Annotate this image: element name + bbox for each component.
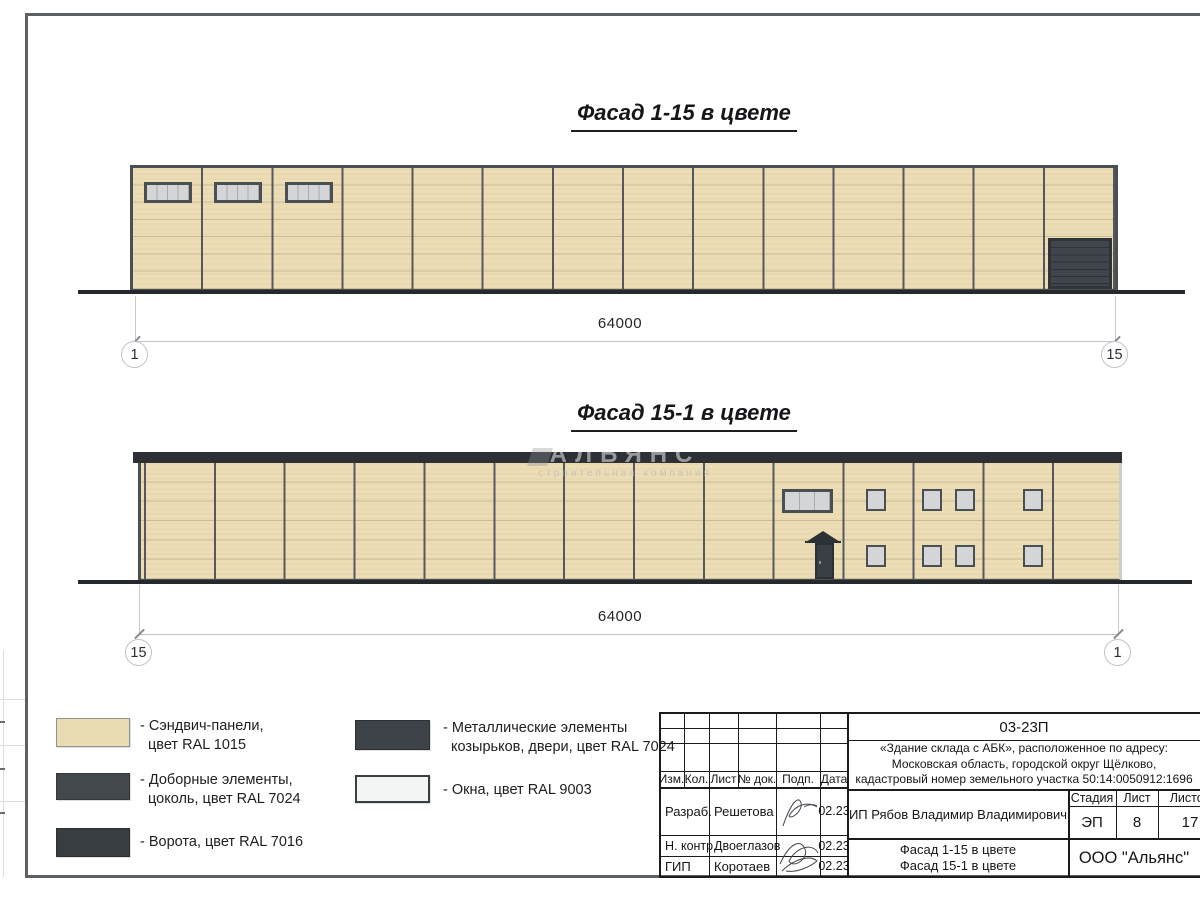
col-header-ndok: № док.: [738, 771, 776, 787]
axis-label: 15: [130, 645, 146, 661]
dimension-line: [135, 341, 1115, 342]
ground-line: [78, 290, 1185, 294]
col-header-izm: Изм.: [659, 771, 684, 787]
title-block: Изм. Кол. Лист № док. Подп. Дата Разраб.…: [659, 712, 1200, 878]
axis-label: 1: [130, 347, 138, 363]
legend-text: - Ворота, цвет RAL 7016: [140, 833, 303, 852]
square-window: [922, 489, 942, 511]
strip-window: [144, 182, 192, 203]
legend-label-gates: - Ворота, цвет RAL 7016: [140, 833, 303, 852]
margin-line: [0, 801, 25, 802]
legend-swatch-trim-elements: [56, 773, 130, 800]
door-handle: [819, 561, 821, 564]
sheet-frame-left: [25, 13, 28, 878]
sheet-frame-top: [25, 13, 1200, 16]
square-window: [1023, 489, 1043, 511]
legend-text: козырьков, двери, цвет RAL 7024: [443, 738, 675, 757]
row-role-nkontr: Н. контр.: [661, 835, 709, 856]
legend-swatch-gates: [56, 828, 130, 857]
facade-15-1-elevation: [138, 463, 1122, 581]
stage-value: ЭП: [1068, 806, 1116, 838]
row-name-korotaev: Коротаев: [710, 856, 776, 876]
margin-line: [0, 745, 25, 746]
legend-label-metal-elements: - Металлические элементы козырьков, двер…: [443, 719, 675, 756]
margin-tick: [0, 721, 5, 723]
legend-swatch-metal-elements: [355, 720, 430, 750]
legend-text: - Доборные элементы,: [140, 771, 301, 790]
strip-window: [285, 182, 333, 203]
extension-line: [1118, 585, 1119, 635]
col-header-data: Дата: [820, 771, 848, 787]
axis-marker-15: 15: [125, 639, 152, 666]
axis-label: 1: [1113, 645, 1121, 661]
row-role-gip: ГИП: [661, 856, 709, 876]
sheets-total: 17: [1158, 806, 1200, 838]
square-window: [866, 545, 886, 567]
col-header-podp: Подп.: [776, 771, 820, 787]
project-description: «Здание склада с АБК», расположенное по …: [848, 740, 1200, 789]
drawing-title: Фасад 1-15 в цвете Фасад 15-1 в цвете: [848, 840, 1068, 876]
col-header-list: Лист: [709, 771, 738, 787]
project-line: «Здание склада с АБК», расположенное по …: [855, 741, 1192, 757]
legend-swatch-windows: [355, 775, 430, 803]
signature: [777, 836, 820, 876]
square-window: [955, 545, 975, 567]
row-name-dvoeglazov: Двоеглазов: [710, 835, 776, 856]
margin-tick: [0, 768, 5, 770]
margin-line: [3, 650, 4, 877]
extension-line: [139, 585, 140, 635]
axis-marker-15: 15: [1101, 341, 1128, 368]
facade-15-1-title: Фасад 15-1 в цвете: [571, 400, 797, 432]
company-name: ООО "Альянс": [1068, 840, 1200, 876]
square-window: [922, 545, 942, 567]
square-window: [1023, 545, 1043, 567]
dimension-value: 64000: [560, 608, 680, 625]
square-window: [866, 489, 886, 511]
drawing-title-line: Фасад 1-15 в цвете: [900, 842, 1016, 858]
watermark-subtext: строительная компания: [538, 468, 712, 479]
axis-marker-1: 1: [121, 341, 148, 368]
stage-label: Стадия: [1068, 789, 1116, 806]
row-role-razrab: Разраб.: [661, 787, 709, 835]
doc-number: 03-23П: [848, 714, 1200, 740]
ground-line: [78, 580, 1192, 584]
legend-label-sandwich-panels: - Сэндвич-панели, цвет RAL 1015: [140, 717, 263, 754]
signature: [777, 790, 820, 834]
sectional-gate: [1048, 238, 1112, 289]
dimension-line: [139, 634, 1118, 635]
axis-marker-1: 1: [1104, 639, 1131, 666]
axis-label: 15: [1106, 347, 1122, 363]
sheet-number: 8: [1116, 806, 1158, 838]
legend-label-trim-elements: - Доборные элементы, цоколь, цвет RAL 70…: [140, 771, 301, 808]
sheets-label: Листов: [1158, 789, 1200, 806]
watermark-text: АЛЬЯНС: [550, 441, 701, 469]
row-date: 02.23: [820, 856, 848, 876]
legend-text: цвет RAL 1015: [140, 736, 263, 755]
row-date: 02.23: [820, 787, 848, 835]
col-header-kol: Кол.: [684, 771, 709, 787]
triple-window: [782, 489, 833, 513]
entrance-door: [815, 543, 834, 579]
margin-line: [0, 699, 25, 700]
dimension-value: 64000: [560, 315, 680, 332]
margin-tick: [0, 812, 5, 814]
project-line: Московская область, городской округ Щёлк…: [855, 757, 1192, 773]
legend-swatch-sandwich-panels: [56, 718, 130, 747]
row-name-reshetova: Решетова: [710, 787, 776, 835]
legend-text: - Окна, цвет RAL 9003: [443, 781, 592, 800]
strip-window: [214, 182, 262, 203]
legend-label-windows: - Окна, цвет RAL 9003: [443, 781, 592, 800]
row-date: 02.23: [820, 835, 848, 856]
legend-text: - Металлические элементы: [443, 719, 675, 738]
square-window: [955, 489, 975, 511]
project-line: кадастровый номер земельного участка 50:…: [855, 772, 1192, 788]
client-name: ИП Рябов Владимир Владимирович: [848, 791, 1068, 838]
sheet-label: Лист: [1116, 789, 1158, 806]
drawing-title-line: Фасад 15-1 в цвете: [900, 858, 1016, 874]
legend-text: - Сэндвич-панели,: [140, 717, 263, 736]
facade-1-15-title: Фасад 1-15 в цвете: [571, 100, 797, 132]
drawing-sheet: Фасад 1-15 в цвете 64000 1 15 Фасад 15-1…: [0, 0, 1200, 900]
facade-1-15-elevation: [130, 165, 1118, 292]
legend-text: цоколь, цвет RAL 7024: [140, 790, 301, 809]
